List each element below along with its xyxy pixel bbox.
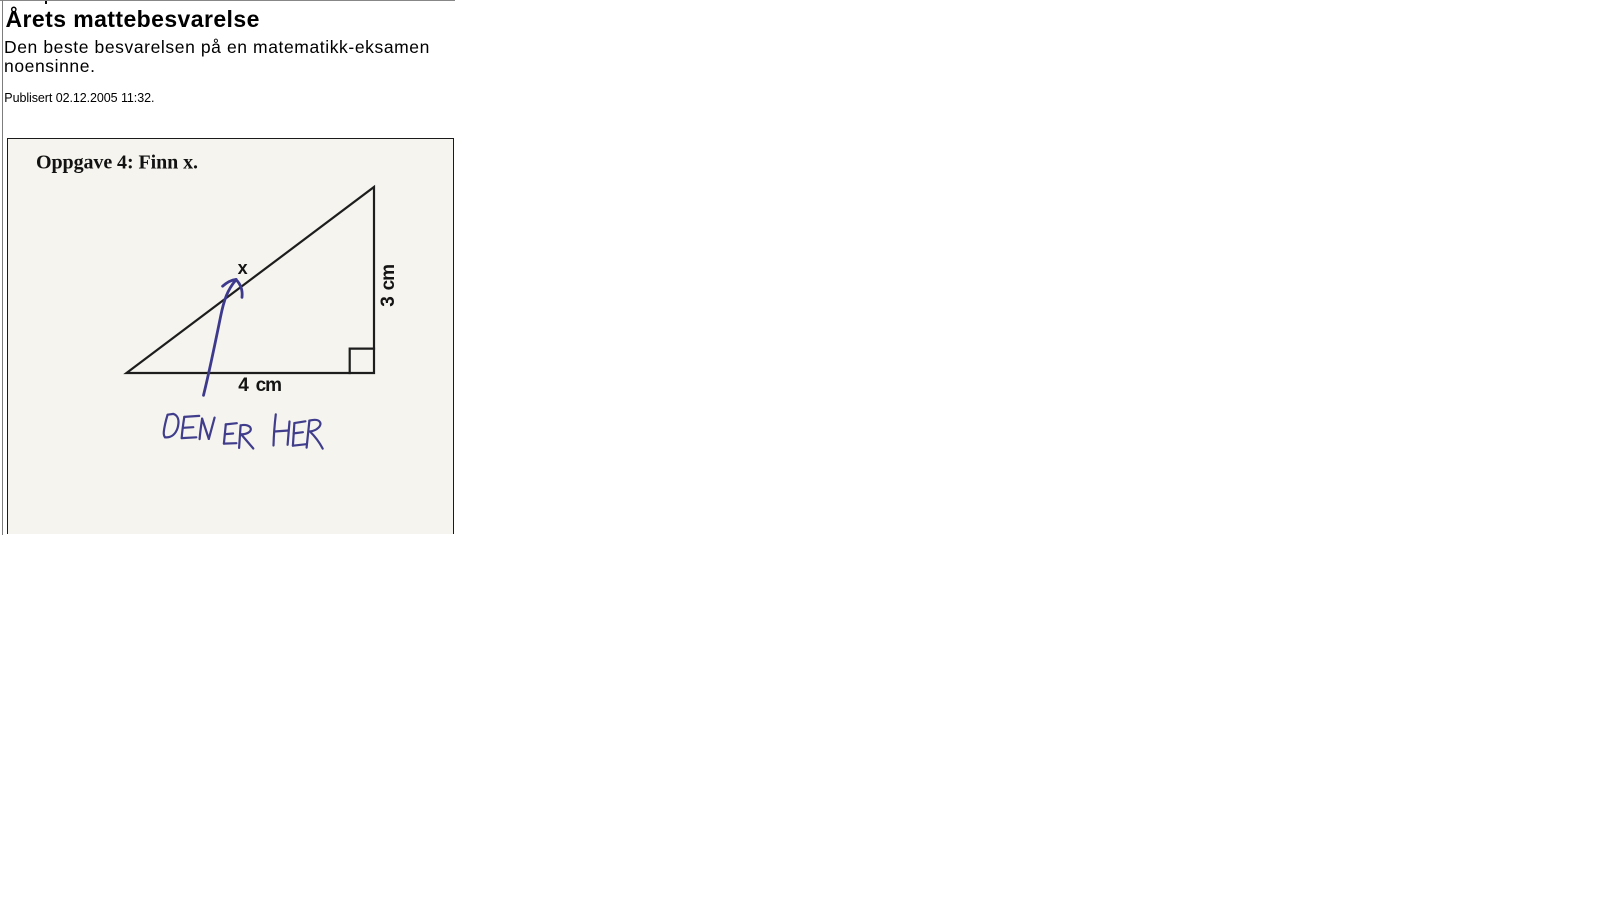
svg-text:4cm: 4cm xyxy=(238,375,281,396)
svg-text:Oppgave 4: Finn x.: Oppgave 4: Finn x. xyxy=(36,152,198,174)
svg-text:x: x xyxy=(238,258,248,278)
svg-text:3cm: 3cm xyxy=(378,265,399,307)
